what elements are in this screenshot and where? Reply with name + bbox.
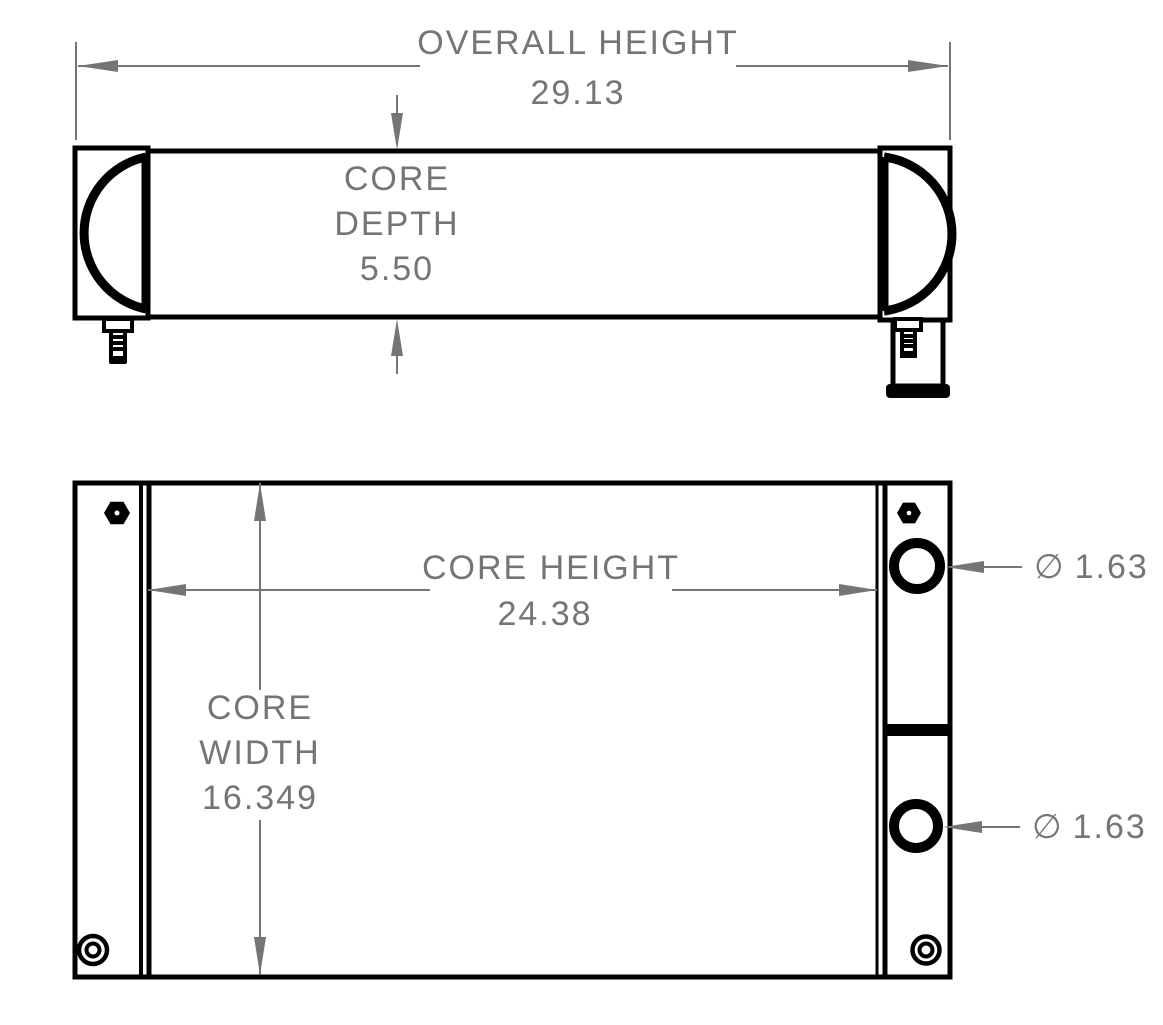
arrowhead-right (908, 60, 948, 72)
lower-port-diameter-value: 1.63 (1073, 808, 1147, 846)
diameter-symbol-icon: ∅ (1032, 808, 1064, 846)
core-width-label-line1: CORE (160, 691, 360, 725)
core-height-value: 24.38 (445, 597, 645, 631)
left-hose-fitting-icon (104, 319, 132, 364)
top-core-outline (148, 151, 880, 317)
top-view-drawing (75, 148, 952, 398)
drawing-geometry (0, 0, 1163, 1025)
lower-port-diameter-label: ∅1.63 (1032, 810, 1147, 844)
diameter-symbol-icon: ∅ (1034, 548, 1066, 586)
overall-height-label: OVERALL HEIGHT (398, 26, 758, 60)
core-width-value: 16.349 (160, 781, 360, 815)
arrowhead-down (391, 113, 403, 150)
core-width-label-line2: WIDTH (160, 736, 360, 770)
core-height-label: CORE HEIGHT (401, 551, 701, 585)
upper-port-diameter-label: ∅1.63 (1034, 550, 1149, 584)
top-right-tank-outline (880, 148, 950, 320)
right-tank-divider (886, 724, 948, 736)
core-depth-label-line1: CORE (297, 162, 497, 196)
overall-height-value: 29.13 (398, 76, 758, 110)
arrowhead-up (391, 319, 403, 356)
core-depth-value: 5.50 (297, 252, 497, 286)
arrowhead-left (78, 60, 118, 72)
engineering-drawing-canvas: OVERALL HEIGHT 29.13 CORE DEPTH 5.50 COR… (0, 0, 1163, 1025)
core-depth-label-line2: DEPTH (297, 207, 497, 241)
upper-port-diameter-value: 1.63 (1075, 548, 1149, 586)
